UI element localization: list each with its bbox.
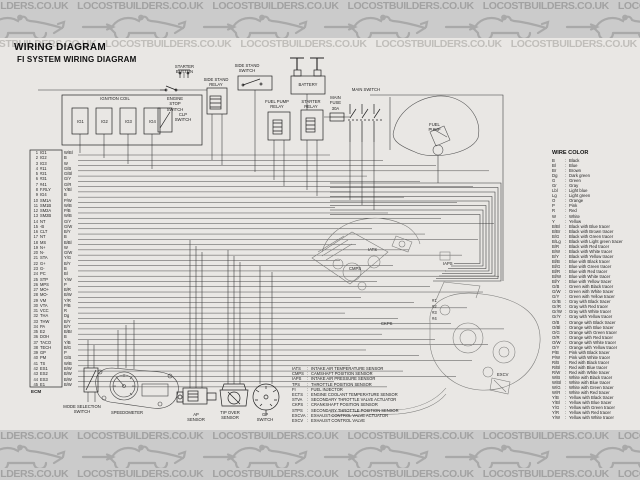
- label-clp-switch: CLP SWITCH: [173, 112, 193, 123]
- pin-wire-color: B/Y: [64, 261, 71, 266]
- label-main-fuse: MAIN FUSE 30A: [327, 95, 344, 111]
- page-title: WIRING DIAGRAM: [14, 42, 106, 53]
- pin-wire-color: B: [64, 266, 67, 271]
- pin-wire-color: B/W: [64, 366, 72, 371]
- pin-name: STP: [40, 277, 60, 282]
- watermark-text: LOCOSTBUILDERS.CO.UK: [348, 430, 474, 442]
- car-icon: [565, 12, 640, 38]
- watermark-band-top: LOCOSTBUILDERS.CO.UK LOCOSTBUILDERS.CO.U…: [0, 0, 640, 38]
- label-coil-ig1: IG1: [74, 119, 87, 124]
- pin-wire-color: B: [64, 234, 67, 239]
- watermark-text: LOCOSTBUILDERS.CO.UK: [77, 430, 203, 442]
- pin-number: 4: [31, 166, 38, 171]
- label-fuel-pump: FUEL PUMP: [426, 122, 443, 133]
- pin-number: 26: [31, 282, 38, 287]
- label-speedometer: SPEEDOMETER: [105, 410, 149, 415]
- pin-wire-color: B/Y: [64, 324, 71, 329]
- abbreviation-legend: IATS : INTAKE AIR TEMPERATURE SENSOR CMP…: [292, 366, 427, 423]
- car-icon: [202, 12, 314, 38]
- pin-name: MO+: [40, 287, 60, 292]
- pin-number: 12: [31, 208, 38, 213]
- watermark-text-row: LOCOSTBUILDERS.CO.UK LOCOSTBUILDERS.CO.U…: [0, 0, 640, 12]
- pin-name: ES2: [40, 371, 60, 376]
- pin-name: MS: [40, 240, 60, 245]
- car-icon: [565, 442, 640, 468]
- label-injector-4: #4: [432, 316, 437, 321]
- label-injector-3: #3: [432, 310, 437, 315]
- pin-wire-color: G/W: [64, 250, 72, 255]
- car-icon: [0, 12, 72, 38]
- pin-name: MPS: [40, 282, 60, 287]
- watermark-text: LOCOSTBUILDERS.CO.UK: [483, 0, 609, 12]
- pin-name: IG1: [40, 150, 60, 155]
- label-fuel-pump-relay: FUEL PUMP RELAY: [264, 99, 290, 110]
- label-engine-stop-switch: ENGINE STOP SWITCH: [161, 96, 189, 112]
- page-subtitle: FI SYSTEM WIRING DIAGRAM: [17, 55, 136, 64]
- pin-name: G-: [40, 266, 60, 271]
- abbreviation-entry: EXCV : EXHAUST CONTROL VALVE: [292, 418, 427, 423]
- abbreviation-name: EXHAUST CONTROL VALVE: [311, 418, 365, 423]
- label-mode-selection-switch: MODE SELECTION SWITCH: [60, 404, 104, 415]
- pin-wire-color: B/Y: [64, 229, 71, 234]
- label-injector-1: #1: [432, 298, 437, 303]
- watermark-text: LOCOSTBUILDERS.CO.UK: [348, 0, 474, 12]
- watermark-text: LOCOSTBUILDERS.CO.UK: [0, 468, 68, 480]
- pin-name: NT: [40, 219, 60, 224]
- watermark-text: LOCOSTBUILDERS.CO.UK: [0, 430, 68, 442]
- pin-wire-color: Y/G: [64, 255, 71, 260]
- pin-wire-color: G/Y: [64, 176, 71, 181]
- watermark-text: LOCOSTBUILDERS.CO.UK: [618, 0, 640, 12]
- pin-name: #31: [40, 176, 60, 181]
- pin-name: E2: [40, 329, 60, 334]
- pin-name: VCC: [40, 308, 60, 313]
- pin-name: SM1A: [40, 198, 60, 203]
- label-gp-switch: GP SWITCH: [254, 412, 276, 423]
- pin-number: 21: [31, 255, 38, 260]
- pin-name: SM2B: [40, 213, 60, 218]
- car-icon: [202, 442, 314, 468]
- label-coil-ig4: IG4: [146, 119, 159, 124]
- pin-number: 11: [31, 203, 38, 208]
- label-injector-2: #2: [432, 304, 437, 309]
- pin-wire-color: W/B: [64, 213, 72, 218]
- pin-wire-color: P/B: [64, 208, 71, 213]
- watermark-band-bottom: LOCOSTBUILDERS.CO.UK LOCOSTBUILDERS.CO.U…: [0, 430, 640, 480]
- car-icon: [323, 12, 435, 38]
- pin-number: 5: [31, 171, 38, 176]
- pin-number: 8: [31, 187, 38, 192]
- pin-wire-color: B/Bl: [64, 240, 72, 245]
- pin-number: 3: [31, 161, 38, 166]
- watermark-text: LOCOSTBUILDERS.CO.UK: [212, 430, 338, 442]
- label-battery: BATTERY: [295, 82, 321, 87]
- pin-name: NT: [40, 234, 60, 239]
- pin-wire-color: B/G: [64, 345, 71, 350]
- pin-number: 1: [31, 150, 38, 155]
- pin-number: 44: [31, 377, 38, 382]
- pin-number: 42: [31, 366, 38, 371]
- legend-rows: B : Black Bl : Blue Br : Brown Dg : Dark…: [552, 158, 638, 420]
- pin-name: E1: [40, 382, 60, 387]
- pin-number: 37: [31, 340, 38, 345]
- pin-name: MO-: [40, 292, 60, 297]
- car-icon: [0, 442, 72, 468]
- car-icon: [444, 12, 556, 38]
- pin-number: 36: [31, 334, 38, 339]
- pin-number: 45: [31, 382, 38, 387]
- pin-number: 23: [31, 266, 38, 271]
- pin-number: 9: [31, 192, 38, 197]
- pin-number: 41: [31, 361, 38, 366]
- label-starter-relay: STARTER RELAY: [299, 99, 323, 110]
- car-icon: [323, 442, 435, 468]
- page: { "watermark": { "text": "LOCOSTBUILDERS…: [0, 0, 640, 480]
- speedometer-art: [96, 368, 179, 408]
- pin-number: 27: [31, 287, 38, 292]
- abbreviation-code: EXCV: [292, 418, 307, 423]
- pin-wire-color: B: [64, 192, 67, 197]
- label-main-switch: MAIN SWITCH: [348, 87, 384, 92]
- pin-name: PM: [40, 355, 60, 360]
- pin-number: 14: [31, 219, 38, 224]
- label-iaps: IAPS: [443, 261, 453, 266]
- pin-name: DOH: [40, 334, 60, 339]
- pin-wire-color: W/B: [64, 203, 72, 208]
- pin-name: #41: [40, 182, 60, 187]
- pin-wire-color: G/R: [64, 182, 71, 187]
- car-icon: [81, 12, 193, 38]
- label-ckps: CKPS: [381, 321, 392, 326]
- pin-wire-color: B/W: [64, 382, 72, 387]
- watermark-text: LOCOSTBUILDERS.CO.UK: [77, 468, 203, 480]
- pin-number: 2: [31, 155, 38, 160]
- legend-name: Yellow with White tracer: [569, 415, 614, 420]
- pin-wire-color: G/Bl: [64, 171, 72, 176]
- label-coil-ig3: IG3: [122, 119, 135, 124]
- legend-code: Y/W: [552, 415, 565, 420]
- pin-number: 24: [31, 271, 38, 276]
- pin-wire-color: Y/B: [64, 340, 71, 345]
- legend-entry: Y/W : Yellow with White tracer: [552, 415, 638, 420]
- pin-number: 29: [31, 298, 38, 303]
- ecm-pin-list: 1 IG1 W/Bl 2 IG2 B 3 IG3 W 4 #11 G/B 5 #…: [31, 150, 101, 387]
- watermark-text: LOCOSTBUILDERS.CO.UK: [348, 468, 474, 480]
- pin-wire-color: G/B: [64, 355, 71, 360]
- car-icon: [444, 442, 556, 468]
- pin-name: IG4: [40, 192, 60, 197]
- pin-name: SM1B: [40, 203, 60, 208]
- pin-number: 25: [31, 277, 38, 282]
- pin-number: 17: [31, 234, 38, 239]
- pin-number: 33: [31, 319, 38, 324]
- pin-name: ES1: [40, 366, 60, 371]
- label-ignition-coil: IGNITION COIL: [92, 96, 138, 101]
- pin-name: PC: [40, 271, 60, 276]
- watermark-text: LOCOSTBUILDERS.CO.UK: [618, 430, 640, 442]
- pin-name: VTA: [40, 303, 60, 308]
- pin-number: 22: [31, 261, 38, 266]
- pin-wire-color: B: [64, 334, 67, 339]
- pin-number: 18: [31, 240, 38, 245]
- label-excv: EXCV: [497, 372, 508, 377]
- legend-title: WIRE COLOR: [552, 150, 638, 156]
- pin-number: 6: [31, 176, 38, 181]
- pin-number: 34: [31, 324, 38, 329]
- watermark-text: LOCOSTBUILDERS.CO.UK: [0, 0, 68, 12]
- pin-name: VM: [40, 298, 60, 303]
- watermark-text: LOCOSTBUILDERS.CO.UK: [618, 468, 640, 480]
- pin-name: TS: [40, 361, 60, 366]
- pin-name: -B: [40, 224, 60, 229]
- pin-wire-color: B: [64, 155, 67, 160]
- label-iats: IATS: [368, 247, 377, 252]
- pin-number: 10: [31, 198, 38, 203]
- label-side-stand-relay: SIDE STAND RELAY: [203, 77, 229, 88]
- pin-number: 13: [31, 213, 38, 218]
- pin-name: #21: [40, 171, 60, 176]
- watermark-car-row: [0, 442, 640, 468]
- pin-wire-color: Y/W: [64, 277, 72, 282]
- pin-name: TECH: [40, 345, 60, 350]
- label-ap-sensor: AP SENSOR: [186, 412, 206, 423]
- pin-wire-color: Dg: [64, 313, 69, 318]
- pin-name: GP: [40, 350, 60, 355]
- pin-wire-color: B/R: [64, 287, 71, 292]
- watermark-text-row: LOCOSTBUILDERS.CO.UK LOCOSTBUILDERS.CO.U…: [0, 430, 640, 442]
- pin-wire-color: P: [64, 350, 67, 355]
- car-icon: [81, 442, 193, 468]
- pin-wire-color: W: [64, 245, 68, 250]
- pin-number: 15: [31, 224, 38, 229]
- watermark-car-row: [0, 12, 640, 38]
- pin-name: PA: [40, 324, 60, 329]
- pin-number: 38: [31, 345, 38, 350]
- pin-wire-color: P: [64, 282, 67, 287]
- pin-wire-color: B/W: [64, 371, 72, 376]
- pin-number: 30: [31, 303, 38, 308]
- pin-number: 16: [31, 229, 38, 234]
- pin-wire-color: R: [64, 308, 67, 313]
- pin-wire-color: B/Y: [64, 319, 71, 324]
- pin-wire-color: B/W: [64, 377, 72, 382]
- pin-number: 31: [31, 308, 38, 313]
- pin-name: STA: [40, 255, 60, 260]
- pin-name: THW: [40, 319, 60, 324]
- pin-name: IG3: [40, 161, 60, 166]
- pin-number: 43: [31, 371, 38, 376]
- pin-name: F.RLY: [40, 187, 60, 192]
- pin-wire-color: P/B: [64, 303, 71, 308]
- pin-number: 39: [31, 350, 38, 355]
- pin-name: N+: [40, 245, 60, 250]
- pin-wire-color: G/W: [64, 224, 72, 229]
- pin-wire-color: Bl: [64, 271, 68, 276]
- pin-number: 20: [31, 250, 38, 255]
- pin-number: 19: [31, 245, 38, 250]
- pin-name: G+: [40, 261, 60, 266]
- watermark-text-row: LOCOSTBUILDERS.CO.UK LOCOSTBUILDERS.CO.U…: [0, 468, 640, 480]
- pin-wire-color: Y/R: [64, 298, 71, 303]
- pin-number: 28: [31, 292, 38, 297]
- pin-name: CLT: [40, 229, 60, 234]
- pin-number: 40: [31, 355, 38, 360]
- pin-wire-color: W/B: [64, 361, 72, 366]
- label-cmps: CMPS: [349, 266, 361, 271]
- wire-bus: [78, 155, 504, 387]
- pin-wire-color: G/B: [64, 166, 71, 171]
- pin-number: 32: [31, 313, 38, 318]
- pin-name: ES3: [40, 377, 60, 382]
- pin-name: #11: [40, 166, 60, 171]
- watermark-text: LOCOSTBUILDERS.CO.UK: [212, 468, 338, 480]
- watermark-text: LOCOSTBUILDERS.CO.UK: [212, 0, 338, 12]
- pin-wire-color: W: [64, 161, 68, 166]
- label-tip-over-sensor: TIP OVER SENSOR: [218, 410, 242, 421]
- pin-name: SM2A: [40, 208, 60, 213]
- diagram-paper: WIRING DIAGRAM FI SYSTEM WIRING DIAGRAM …: [0, 38, 640, 430]
- pin-wire-color: B/W: [64, 292, 72, 297]
- pin-wire-color: Y/Bl: [64, 187, 72, 192]
- pin-wire-color: B/Br: [64, 329, 72, 334]
- ecm-pin-row: 45 E1 B/W: [31, 382, 101, 387]
- pin-wire-color: P/W: [64, 198, 72, 203]
- label-starter-button: STARTER BUTTON: [172, 64, 197, 75]
- pin-name: THA: [40, 313, 60, 318]
- pin-name: IG2: [40, 155, 60, 160]
- ecm-label: ECM: [31, 389, 41, 394]
- pin-name: TACO: [40, 340, 60, 345]
- pin-number: 7: [31, 182, 38, 187]
- pin-wire-color: G/Y: [64, 219, 71, 224]
- watermark-text: LOCOSTBUILDERS.CO.UK: [483, 430, 609, 442]
- pin-number: 35: [31, 329, 38, 334]
- pin-wire-color: W/Bl: [64, 150, 73, 155]
- label-side-stand-switch: SIDE STAND SWITCH: [233, 63, 261, 74]
- watermark-text: LOCOSTBUILDERS.CO.UK: [77, 0, 203, 12]
- wire-color-legend: WIRE COLOR B : Black Bl : Blue Br : Brow…: [552, 150, 638, 420]
- label-coil-ig2: IG2: [98, 119, 111, 124]
- pin-name: N-: [40, 250, 60, 255]
- watermark-text: LOCOSTBUILDERS.CO.UK: [483, 468, 609, 480]
